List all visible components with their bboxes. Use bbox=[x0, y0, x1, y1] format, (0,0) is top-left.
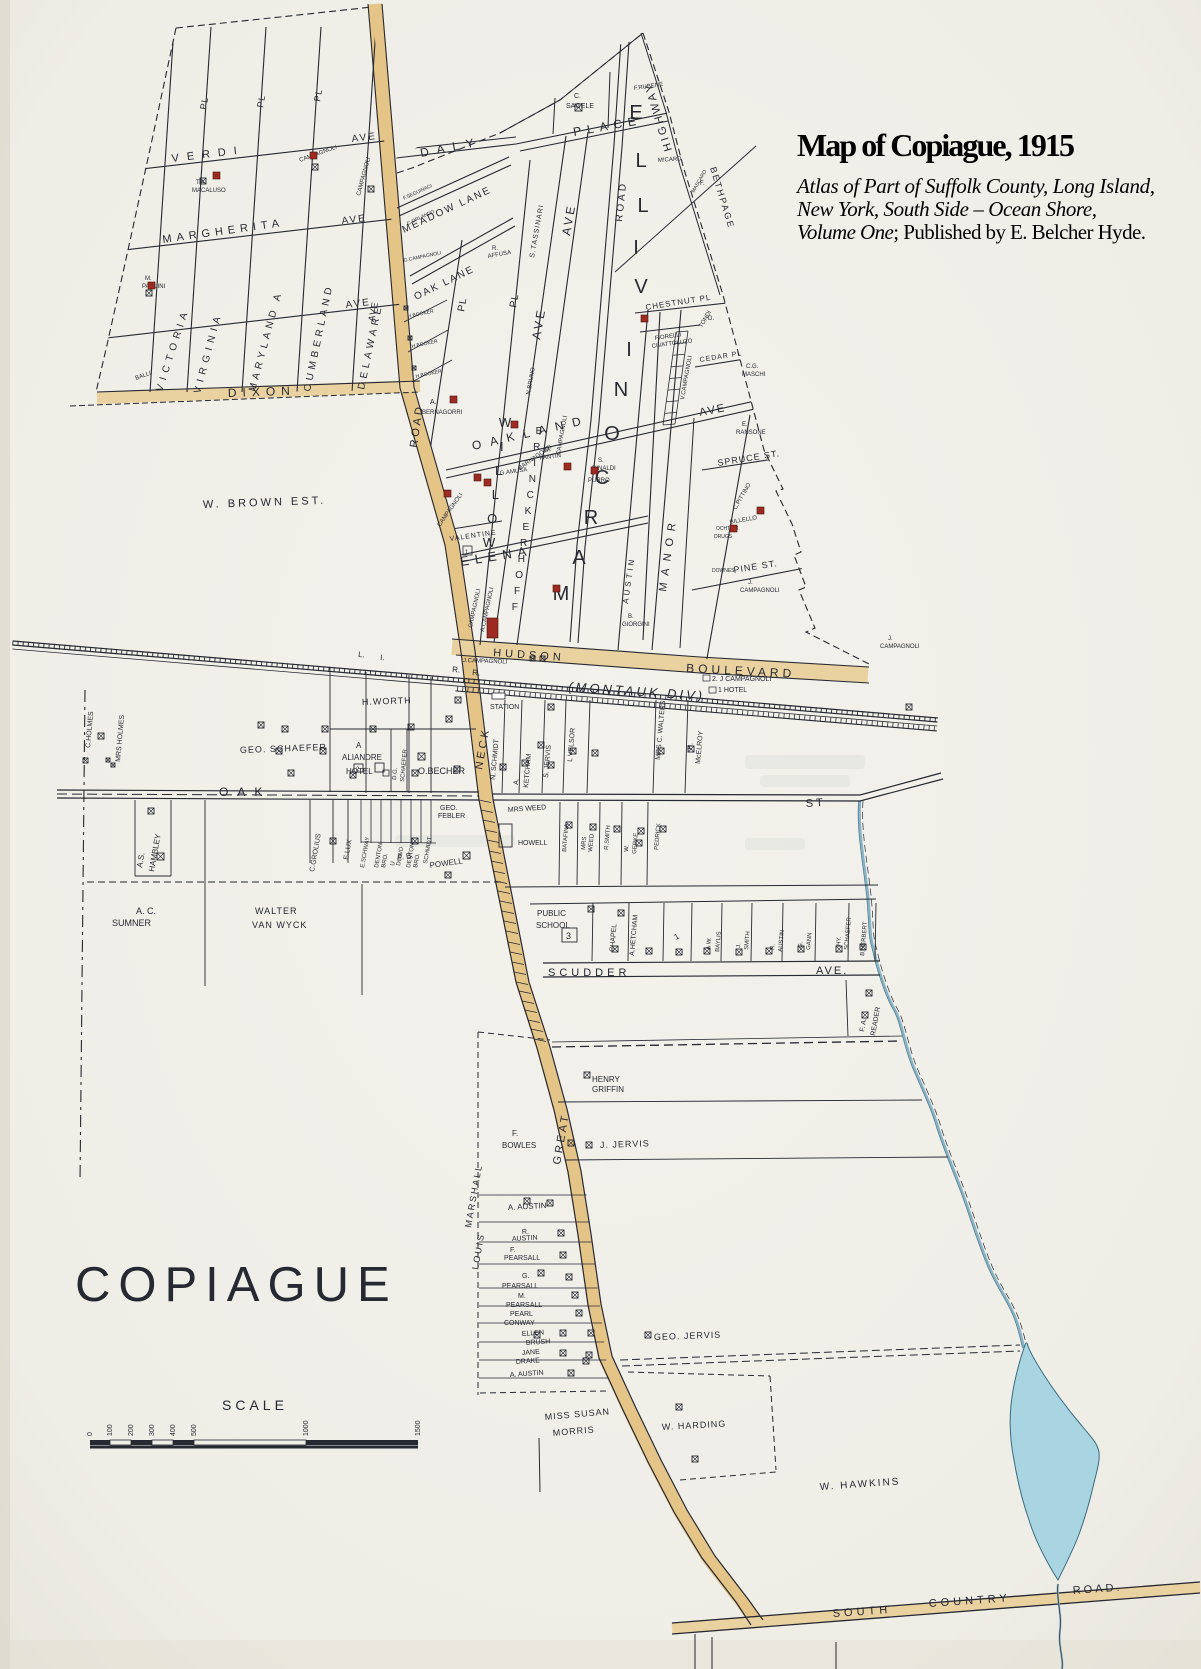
svg-text:HY.: HY. bbox=[836, 936, 843, 946]
svg-text:HENRY: HENRY bbox=[592, 1075, 621, 1084]
svg-text:DRUGS: DRUGS bbox=[714, 534, 733, 540]
svg-text:H.WORTH: H.WORTH bbox=[362, 695, 412, 707]
svg-text:M.: M. bbox=[145, 276, 152, 282]
svg-text:C.G.: C.G. bbox=[746, 364, 759, 370]
svg-text:F: F bbox=[514, 586, 520, 597]
svg-text:MRS: MRS bbox=[581, 836, 588, 850]
svg-text:W: W bbox=[499, 415, 512, 430]
svg-text:W.: W. bbox=[624, 844, 631, 852]
svg-text:G.: G. bbox=[522, 1273, 529, 1280]
svg-text:K: K bbox=[525, 506, 532, 517]
svg-text:D.G.: D.G. bbox=[392, 767, 399, 780]
svg-text:F: F bbox=[512, 602, 518, 613]
svg-text:STATION: STATION bbox=[490, 704, 519, 711]
svg-text:300: 300 bbox=[149, 1424, 156, 1436]
svg-text:1 HOTEL: 1 HOTEL bbox=[718, 687, 747, 694]
svg-text:J. JERVIS: J. JERVIS bbox=[600, 1138, 650, 1150]
svg-text:F.: F. bbox=[512, 1129, 518, 1138]
svg-text:R: R bbox=[520, 538, 527, 549]
svg-text:AUSTIN: AUSTIN bbox=[512, 1235, 538, 1243]
svg-text:C: C bbox=[527, 490, 534, 501]
svg-text:GIORGINI: GIORGINI bbox=[622, 622, 650, 628]
svg-text:N: N bbox=[529, 474, 536, 485]
svg-text:W: W bbox=[483, 535, 496, 550]
svg-text:WALTER: WALTER bbox=[255, 906, 298, 916]
svg-text:CONWAY: CONWAY bbox=[504, 1320, 535, 1327]
svg-text:1500: 1500 bbox=[415, 1420, 422, 1436]
svg-text:DOWNES: DOWNES bbox=[712, 568, 735, 574]
svg-text:L: L bbox=[492, 487, 499, 502]
svg-text:L: L bbox=[637, 195, 648, 217]
svg-text:PURRO: PURRO bbox=[588, 478, 610, 484]
svg-text:AVE.: AVE. bbox=[816, 965, 848, 977]
svg-text:400: 400 bbox=[170, 1424, 177, 1436]
svg-text:GRIFFIN: GRIFFIN bbox=[592, 1085, 624, 1094]
svg-text:MACALUSO: MACALUSO bbox=[192, 188, 226, 194]
svg-text:R.: R. bbox=[472, 668, 481, 678]
svg-text:3: 3 bbox=[566, 931, 571, 941]
svg-text:E: E bbox=[522, 522, 529, 533]
svg-text:Volume One; Published by E. Be: Volume One; Published by E. Belcher Hyde… bbox=[797, 220, 1146, 244]
svg-text:S.: S. bbox=[598, 458, 604, 464]
svg-text:BERNAGORRI: BERNAGORRI bbox=[422, 410, 463, 416]
svg-text:N: N bbox=[614, 379, 628, 401]
svg-text:E.: E. bbox=[742, 422, 748, 428]
svg-text:PUBLIC: PUBLIC bbox=[537, 909, 566, 918]
svg-text:L: L bbox=[635, 150, 646, 172]
svg-text:R.: R. bbox=[492, 246, 498, 252]
svg-text:J.: J. bbox=[888, 636, 893, 642]
svg-text:PEARSALL: PEARSALL bbox=[502, 1283, 538, 1290]
svg-text:O: O bbox=[604, 423, 620, 445]
svg-text:200: 200 bbox=[128, 1424, 135, 1436]
svg-text:COPIAGUE: COPIAGUE bbox=[75, 1258, 398, 1312]
svg-text:CAMPAGNOLI: CAMPAGNOLI bbox=[740, 588, 780, 594]
svg-text:PEARL: PEARL bbox=[510, 1311, 533, 1318]
svg-text:B.: B. bbox=[628, 614, 634, 620]
svg-text:O: O bbox=[515, 570, 523, 581]
svg-text:SAGELE: SAGELE bbox=[566, 103, 594, 110]
svg-text:New York, South Side – Ocean S: New York, South Side – Ocean Shore, bbox=[796, 197, 1097, 221]
svg-text:100: 100 bbox=[107, 1424, 114, 1436]
svg-text:HOWELL: HOWELL bbox=[518, 840, 548, 847]
svg-text:A: A bbox=[572, 547, 586, 569]
svg-text:R: R bbox=[584, 507, 598, 529]
svg-text:I: I bbox=[633, 237, 639, 259]
svg-text:CAMPAGNOLI: CAMPAGNOLI bbox=[880, 644, 920, 650]
svg-text:GEO.: GEO. bbox=[440, 805, 458, 812]
svg-text:A. C.: A. C. bbox=[136, 906, 156, 916]
svg-text:SCUDDER: SCUDDER bbox=[548, 967, 630, 979]
svg-text:A.: A. bbox=[513, 778, 521, 785]
svg-text:R.: R. bbox=[452, 665, 461, 675]
svg-text:O: O bbox=[487, 511, 497, 526]
svg-text:1000: 1000 bbox=[303, 1420, 310, 1436]
svg-text:PEARSALL: PEARSALL bbox=[504, 1255, 540, 1262]
svg-text:SCHOOL: SCHOOL bbox=[536, 921, 570, 930]
svg-text:JANE: JANE bbox=[522, 1349, 541, 1357]
svg-text:VAN WYCK: VAN WYCK bbox=[252, 920, 307, 930]
svg-text:J.: J. bbox=[748, 580, 753, 586]
svg-text:F.: F. bbox=[510, 1247, 516, 1254]
svg-text:J.: J. bbox=[736, 943, 742, 949]
svg-text:H: H bbox=[518, 554, 525, 565]
svg-text:500: 500 bbox=[191, 1424, 198, 1436]
svg-text:ST: ST bbox=[805, 797, 826, 810]
svg-text:I: I bbox=[500, 439, 504, 454]
svg-text:PEARSALL: PEARSALL bbox=[506, 1302, 542, 1309]
svg-text:RANSONE: RANSONE bbox=[736, 430, 766, 436]
svg-text:M.: M. bbox=[518, 1293, 526, 1300]
svg-text:BOWLES: BOWLES bbox=[502, 1141, 536, 1150]
svg-text:A.: A. bbox=[430, 399, 437, 406]
svg-text:A: A bbox=[356, 741, 362, 750]
svg-text:B: B bbox=[536, 426, 543, 437]
svg-text:OAK: OAK bbox=[219, 785, 271, 799]
svg-text:L.: L. bbox=[358, 650, 365, 659]
svg-text:V: V bbox=[634, 276, 648, 298]
svg-text:SCALE: SCALE bbox=[222, 1397, 288, 1413]
svg-text:Atlas of Part of Suffolk Count: Atlas of Part of Suffolk County, Long Is… bbox=[795, 174, 1155, 198]
svg-text:2. J CAMPAGNOLI: 2. J CAMPAGNOLI bbox=[712, 676, 771, 683]
svg-text:C.: C. bbox=[574, 93, 581, 100]
svg-text:I: I bbox=[626, 339, 632, 361]
svg-text:Map of Copiague, 1915: Map of Copiague, 1915 bbox=[797, 127, 1075, 163]
svg-text:0: 0 bbox=[87, 1432, 94, 1436]
svg-text:I.: I. bbox=[380, 653, 385, 662]
svg-text:SUMNER: SUMNER bbox=[112, 918, 152, 928]
svg-text:MASCHI: MASCHI bbox=[742, 372, 766, 378]
svg-text:ALIANDRE: ALIANDRE bbox=[342, 753, 382, 762]
svg-text:FEBLER: FEBLER bbox=[438, 813, 465, 820]
